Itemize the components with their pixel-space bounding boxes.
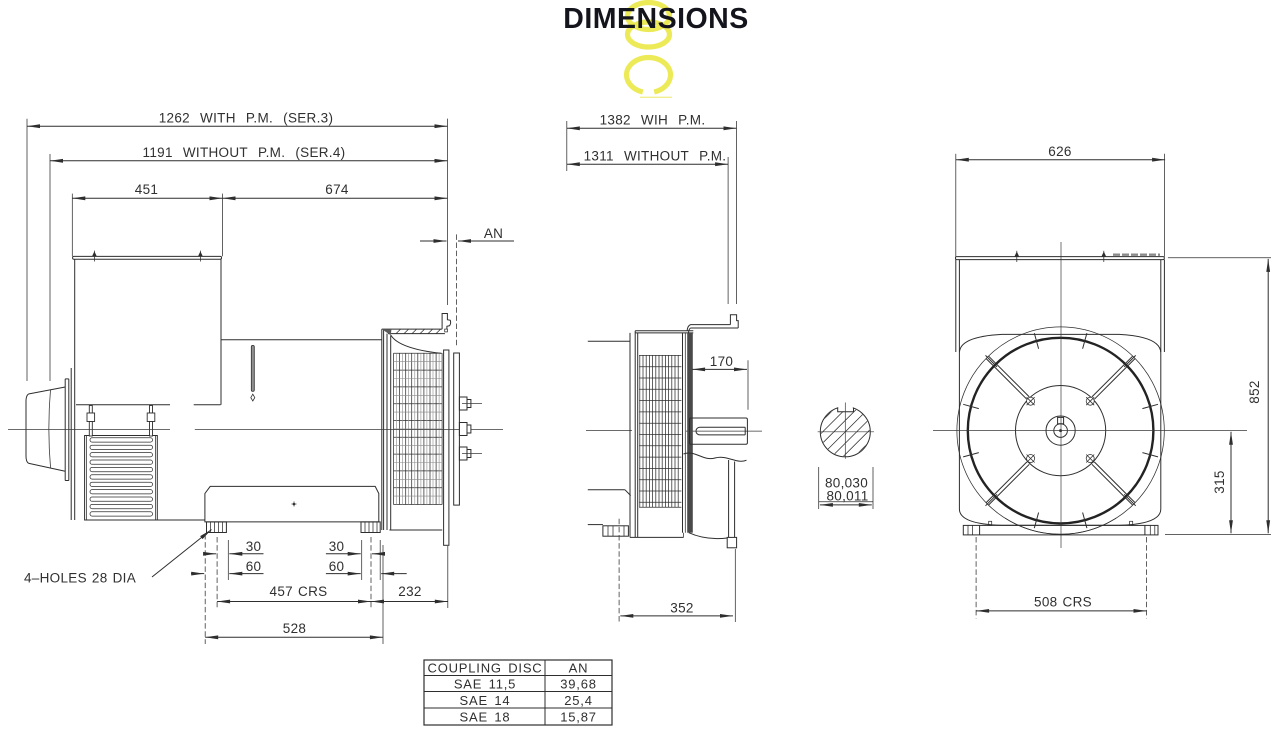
svg-text:626: 626 <box>1048 144 1071 159</box>
svg-text:315: 315 <box>1212 470 1227 493</box>
svg-text:1262 WITH P.M. (SER.3): 1262 WITH P.M. (SER.3) <box>159 111 334 126</box>
svg-text:SAE 14: SAE 14 <box>460 693 511 708</box>
svg-text:232: 232 <box>398 584 421 599</box>
svg-text:30: 30 <box>329 539 345 554</box>
svg-text:SAE 11,5: SAE 11,5 <box>454 676 516 691</box>
svg-text:COUPLING DISC: COUPLING DISC <box>428 660 543 675</box>
svg-text:4–HOLES 28 DIA: 4–HOLES 28 DIA <box>24 571 136 586</box>
svg-text:15,87: 15,87 <box>560 709 597 724</box>
svg-text:39,68: 39,68 <box>560 676 597 691</box>
svg-text:80,011: 80,011 <box>826 488 868 503</box>
svg-text:508 CRS: 508 CRS <box>1034 595 1092 610</box>
svg-text:1311 WITHOUT P.M.: 1311 WITHOUT P.M. <box>584 149 727 164</box>
svg-text:1382 WIH P.M.: 1382 WIH P.M. <box>600 113 706 128</box>
svg-text:451: 451 <box>135 182 158 197</box>
svg-text:457 CRS: 457 CRS <box>270 584 328 599</box>
svg-text:852: 852 <box>1247 380 1262 403</box>
svg-text:1191 WITHOUT P.M. (SER.4): 1191 WITHOUT P.M. (SER.4) <box>143 145 346 160</box>
svg-text:528: 528 <box>283 621 306 636</box>
svg-text:60: 60 <box>246 559 262 574</box>
svg-text:674: 674 <box>325 182 349 197</box>
svg-text:AN: AN <box>484 226 503 241</box>
svg-text:DIMENSIONS: DIMENSIONS <box>563 3 749 35</box>
svg-text:352: 352 <box>670 600 693 615</box>
svg-text:30: 30 <box>246 539 262 554</box>
svg-text:SAE 18: SAE 18 <box>460 709 511 724</box>
svg-text:170: 170 <box>710 354 733 369</box>
svg-text:60: 60 <box>329 559 345 574</box>
svg-text:25,4: 25,4 <box>564 693 593 708</box>
svg-text:AN: AN <box>569 660 589 675</box>
